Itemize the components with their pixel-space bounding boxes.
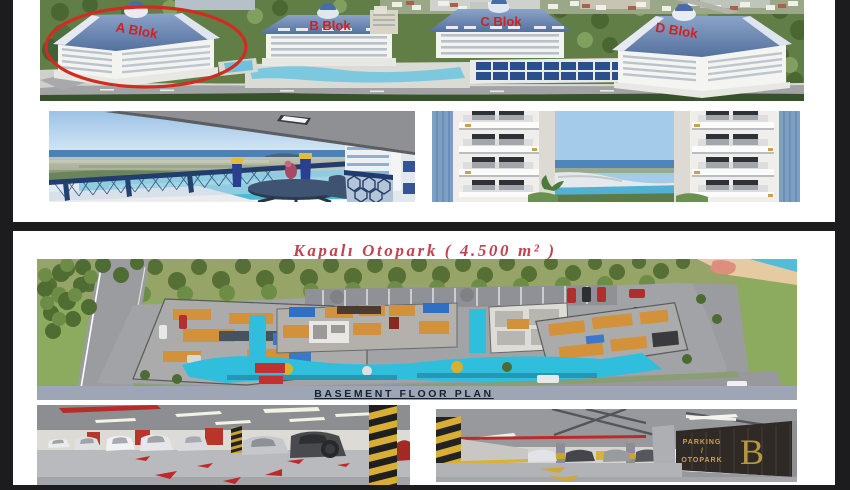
svg-text:B: B: [740, 432, 764, 472]
svg-text:PARKING: PARKING: [683, 439, 722, 446]
svg-text:OTOPARK: OTOPARK: [681, 457, 722, 464]
svg-text:BASEMENT FLOOR PLAN: BASEMENT FLOOR PLAN: [314, 388, 493, 400]
svg-text:B Blok: B Blok: [309, 18, 351, 33]
svg-text:/: /: [701, 448, 703, 455]
svg-text:C Blok: C Blok: [480, 14, 522, 29]
